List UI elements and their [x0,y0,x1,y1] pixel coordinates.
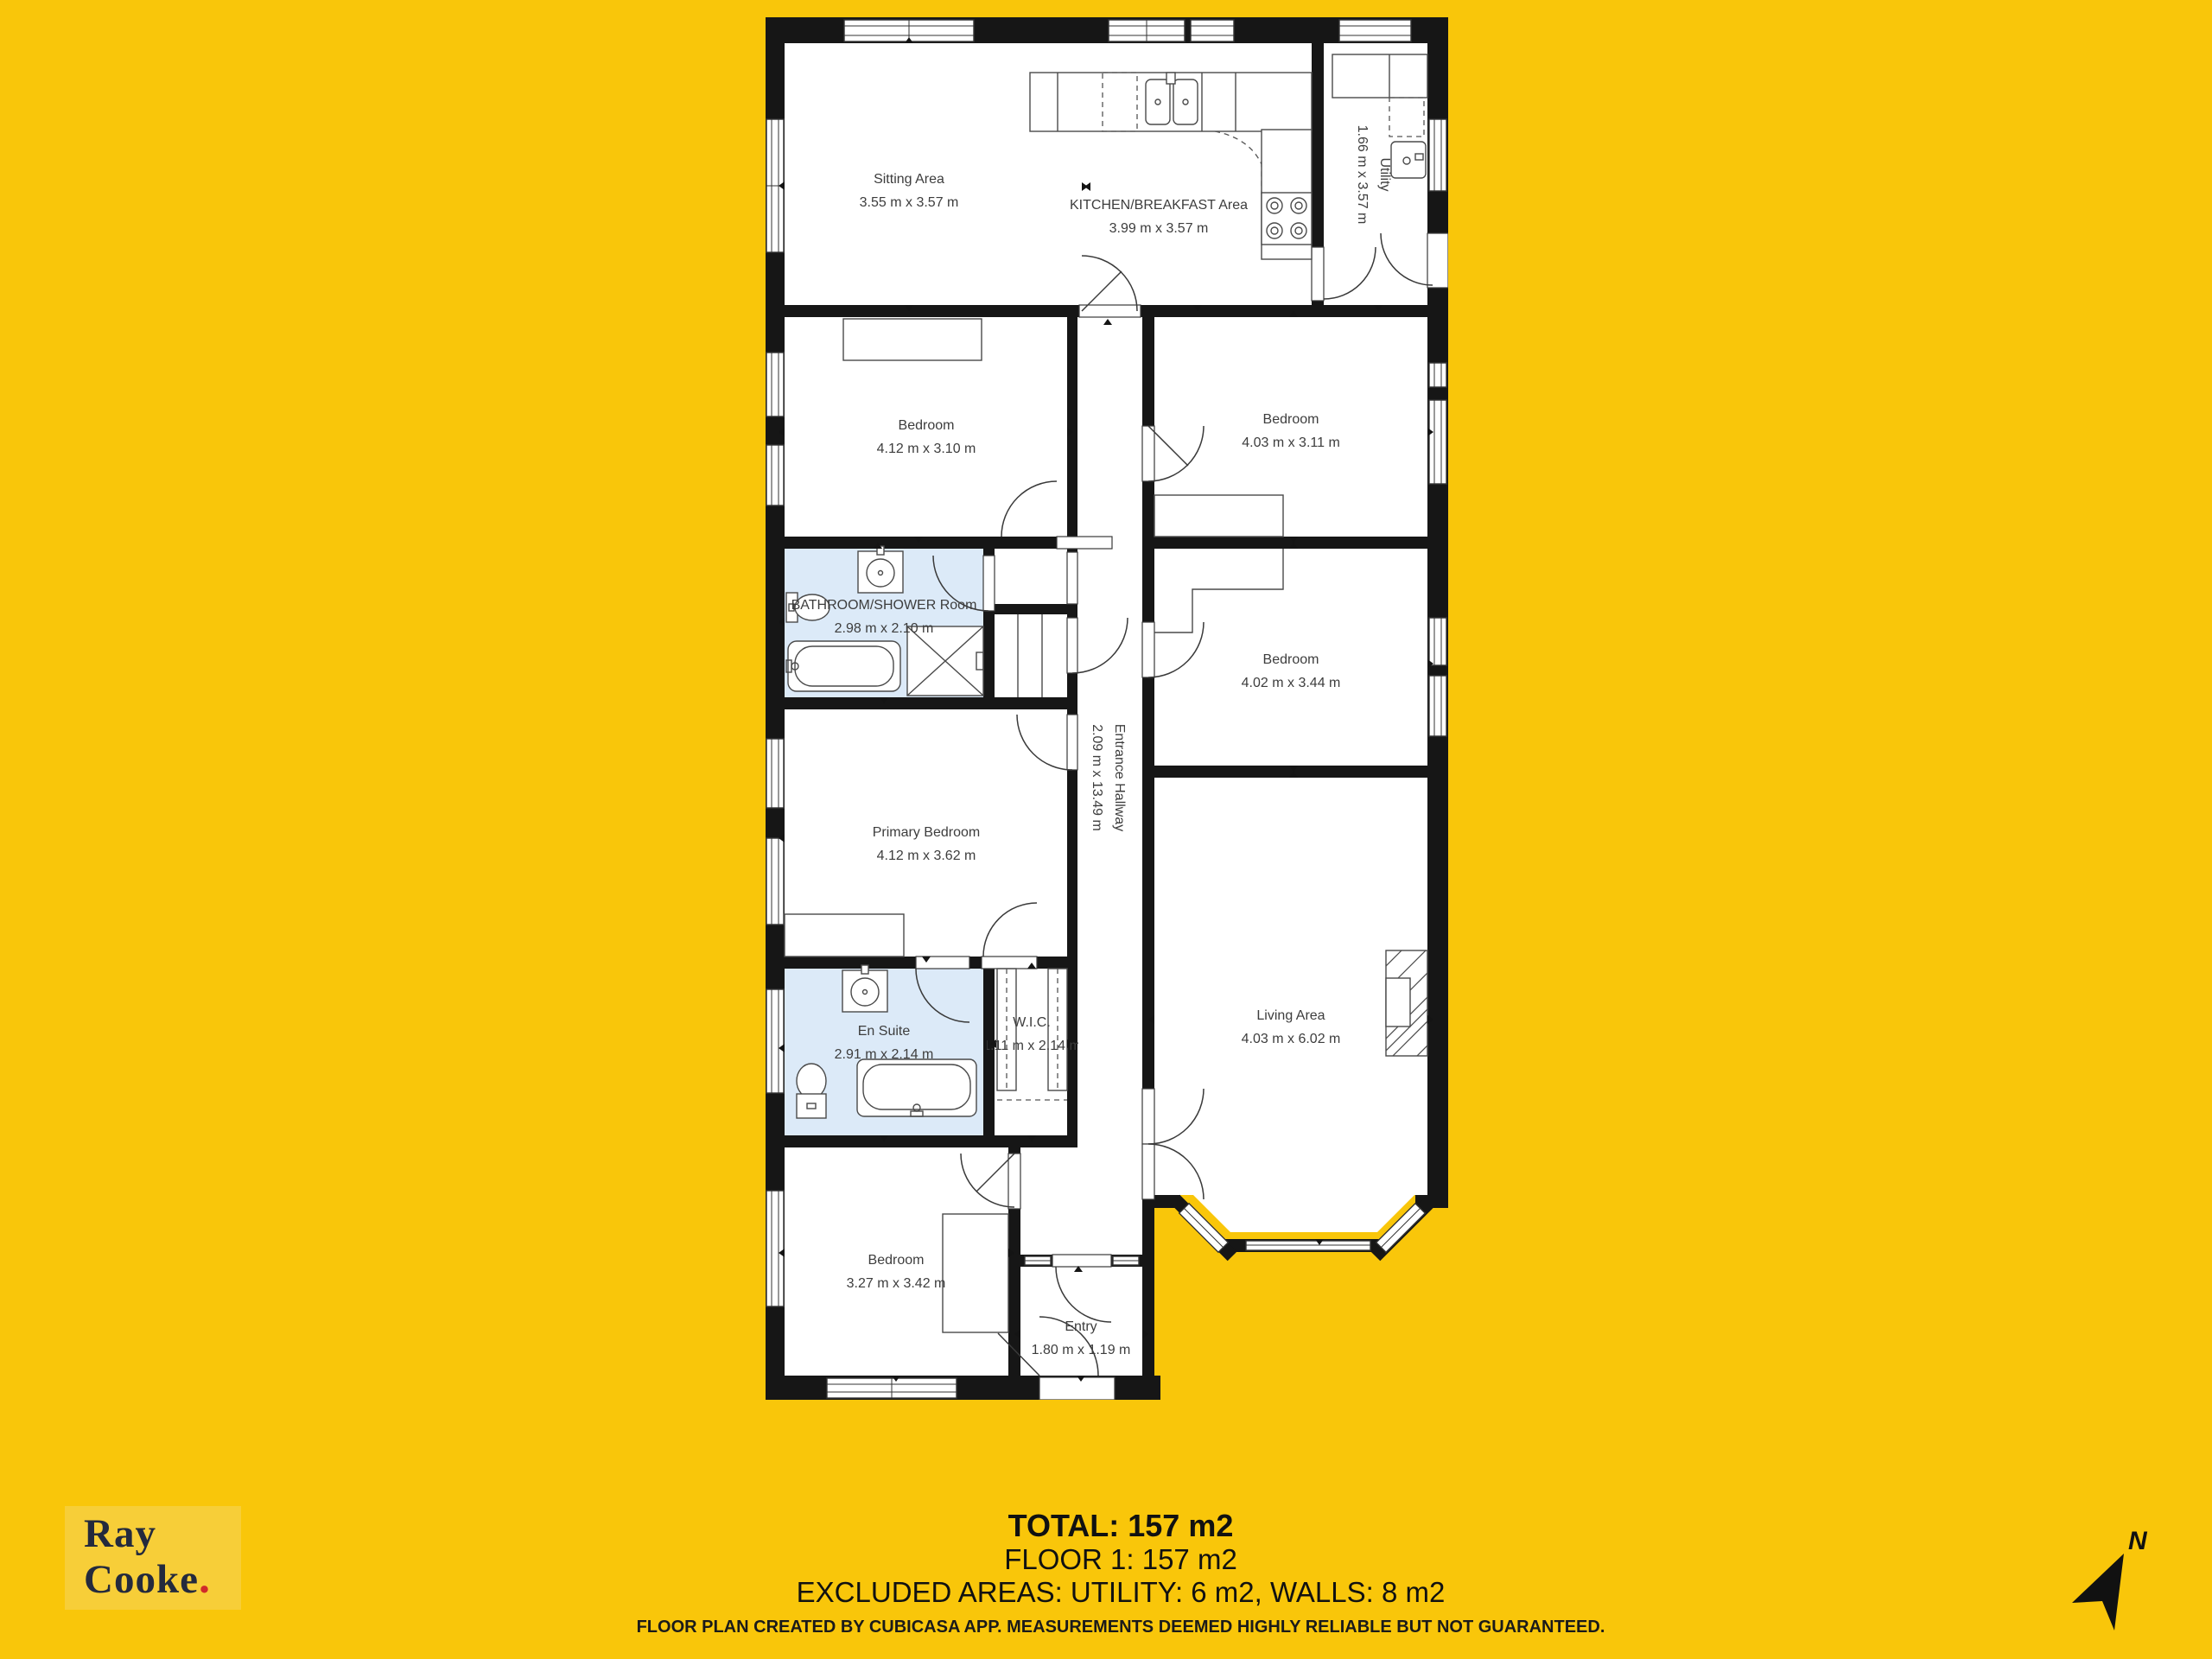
entry-dims: 1.80 m x 1.19 m [1032,1343,1131,1357]
bathtub-fixture [786,641,900,691]
ensuite-bathtub-fixture [857,1059,976,1116]
bedroom-bottom-label: Bedroom [868,1253,925,1268]
total-area-text: TOTAL: 157 m2 [15,1509,2212,1543]
kitchen-label: KITCHEN/BREAKFAST Area [1070,198,1248,213]
bedroom-top-left-label: Bedroom [899,418,955,433]
sitting-area-label: Sitting Area [874,172,944,187]
floor-plan: Sitting Area 3.55 m x 3.57 m KITCHEN/BRE… [766,17,1448,1400]
entry-label: Entry [1065,1319,1096,1334]
bedroom-mid-right-label: Bedroom [1263,652,1319,667]
ensuite-label: En Suite [858,1024,911,1039]
bedroom-top-right-label: Bedroom [1263,412,1319,427]
stove-fixture [1262,193,1312,245]
ensuite-toilet-fixture [797,1064,826,1118]
washer-fixture [1391,142,1426,178]
logo-line1: Ray [84,1511,241,1556]
wic-label: W.I.C. [1013,1015,1051,1030]
north-arrow-icon: N [2061,1525,2164,1646]
living-area-dims: 4.03 m x 6.02 m [1242,1032,1341,1046]
floor-area-text: FLOOR 1: 157 m2 [15,1543,2212,1576]
bedroom-top-right-dims: 4.03 m x 3.11 m [1242,435,1340,450]
sitting-area-dims: 3.55 m x 3.57 m [860,195,959,210]
living-area-label: Living Area [1256,1008,1325,1023]
bathroom-label: BATHROOM/SHOWER Room [791,598,977,613]
bedroom-bottom-dims: 3.27 m x 3.42 m [847,1276,946,1291]
utility-dims: 1.66 m x 3.57 m [1355,125,1370,225]
logo-dot: . [199,1554,211,1603]
utility-label: Utility [1377,157,1392,191]
hallway-label: Entrance Hallway [1112,724,1127,832]
primary-bedroom-dims: 4.12 m x 3.62 m [877,849,976,863]
ray-cooke-logo: Ray Cooke. [65,1506,241,1610]
logo-line2: Cooke. [84,1556,241,1602]
north-label: N [2128,1527,2148,1555]
bathroom-dims: 2.98 m x 2.10 m [835,621,934,636]
primary-bedroom-label: Primary Bedroom [873,825,980,840]
shower-fixture [907,626,983,696]
ensuite-dims: 2.91 m x 2.14 m [835,1047,934,1062]
wic-dims: 1.11 m x 2.14 m [982,1039,1081,1053]
bathroom-sink-fixture [858,546,903,593]
hallway-dims: 2.09 m x 13.49 m [1090,724,1104,831]
excluded-areas-text: EXCLUDED AREAS: UTILITY: 6 m2, WALLS: 8 … [15,1576,2212,1609]
page-background: { "colors": { "page_bg": "#F9C60A", "log… [0,0,2212,1659]
kitchen-dims: 3.99 m x 3.57 m [1109,221,1209,236]
kitchen-sink-fixture [1146,79,1170,124]
area-summary: TOTAL: 157 m2 FLOOR 1: 157 m2 EXCLUDED A… [15,1509,2212,1609]
bedroom-mid-right-dims: 4.02 m x 3.44 m [1242,676,1341,690]
disclaimer-text: FLOOR PLAN CREATED BY CUBICASA APP. MEAS… [15,1618,2212,1637]
bedroom-top-left-dims: 4.12 m x 3.10 m [877,442,976,456]
floor-plan-svg: Sitting Area 3.55 m x 3.57 m KITCHEN/BRE… [766,17,1448,1400]
ensuite-sink-fixture [842,965,887,1012]
